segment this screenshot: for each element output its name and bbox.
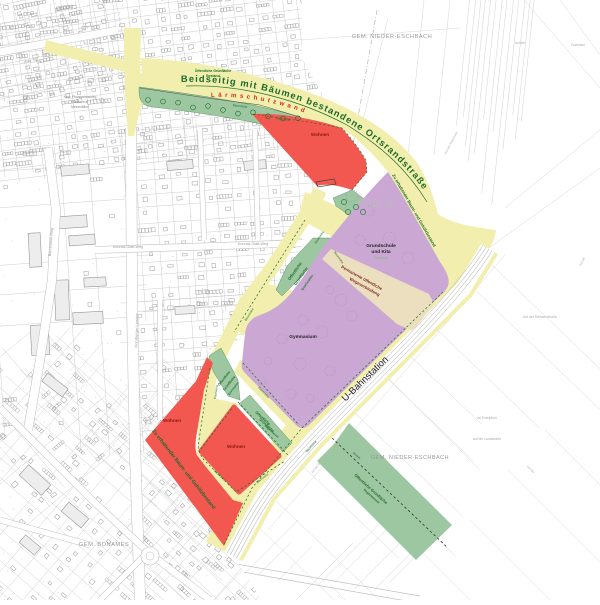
svg-text:Messstation: Messstation xyxy=(71,105,89,109)
svg-text:Konrad-Glatt-Weg: Konrad-Glatt-Weg xyxy=(238,242,269,246)
svg-text:Gymnasium: Gymnasium xyxy=(289,334,316,340)
svg-text:Auf der: Auf der xyxy=(515,41,526,45)
svg-text:GEM. NIEDER-ESCHBACH: GEM. NIEDER-ESCHBACH xyxy=(371,455,449,461)
svg-text:Fuchslauf: Fuchslauf xyxy=(571,43,585,47)
svg-text:Neu: Prozessionsweg: Neu: Prozessionsweg xyxy=(64,95,97,99)
svg-text:Frischluft: Frischluft xyxy=(375,256,388,260)
svg-text:GEM. NIEDER-ESCHBACH: GEM. NIEDER-ESCHBACH xyxy=(352,34,432,40)
svg-text:GEM. BONAMES: GEM. BONAMES xyxy=(79,542,129,548)
svg-text:auf die Landstraße: auf die Landstraße xyxy=(473,437,501,441)
svg-text:Bestand: Bestand xyxy=(206,74,219,78)
svg-text:Konrad-Glatt-Weg: Konrad-Glatt-Weg xyxy=(113,245,144,249)
svg-text:Im Enteipfuhl: Im Enteipfuhl xyxy=(477,416,497,420)
svg-text:Wohnen: Wohnen xyxy=(163,418,181,423)
svg-text:Kirche zur: Kirche zur xyxy=(72,100,88,104)
svg-text:Wohnen: Wohnen xyxy=(227,444,245,449)
svg-text:Grundschule: Grundschule xyxy=(366,243,396,249)
svg-text:Wohnen: Wohnen xyxy=(311,132,329,137)
svg-text:Auf der Steinernstraße: Auf der Steinernstraße xyxy=(523,315,557,319)
svg-text:Öffentliche Grünfläche: Öffentliche Grünfläche xyxy=(195,68,232,73)
svg-text:und Kita: und Kita xyxy=(371,249,391,255)
